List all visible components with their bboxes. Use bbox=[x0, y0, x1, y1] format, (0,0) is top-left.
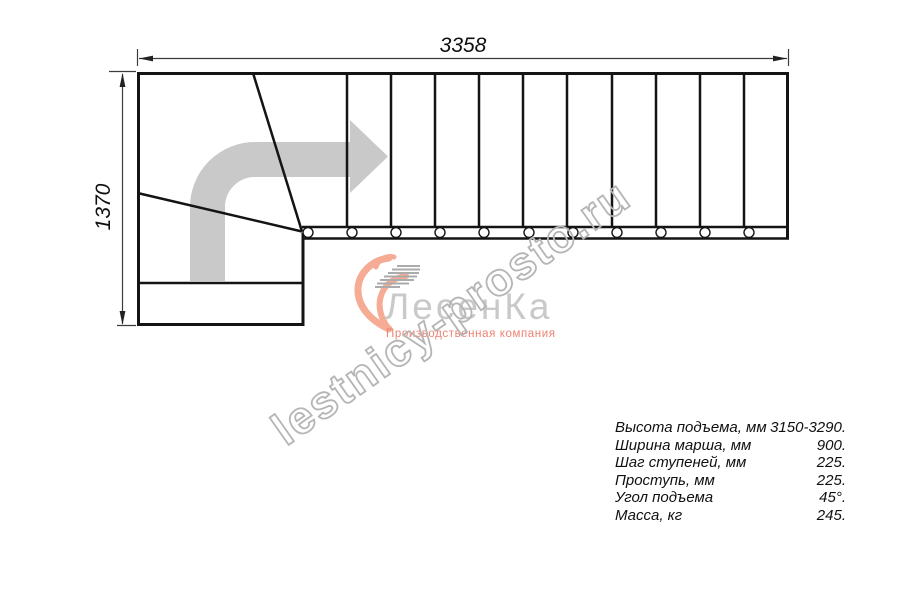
width-dimension: 3358 bbox=[138, 34, 789, 66]
spec-value: 225. bbox=[817, 454, 846, 472]
height-dimension: 1370 bbox=[92, 72, 136, 326]
spec-row: Высота подъема, мм 3150-3290. bbox=[615, 419, 846, 437]
baluster-circle bbox=[391, 228, 401, 238]
spec-label: Шаг ступеней, мм bbox=[615, 454, 746, 472]
height-dimension-label: 1370 bbox=[92, 183, 115, 230]
direction-arrow-shaft bbox=[208, 160, 351, 282]
baluster-circle bbox=[435, 228, 445, 238]
spec-label: Проступь, мм bbox=[615, 472, 715, 490]
spec-row: Ширина марша, мм 900. bbox=[615, 437, 846, 455]
spec-row: Масса, кг 245. bbox=[615, 507, 846, 525]
spec-value: 3150-3290. bbox=[770, 419, 846, 437]
watermark-text: lestnicy-prosto.ru bbox=[262, 169, 640, 455]
spec-label: Угол подъема bbox=[615, 489, 713, 507]
spec-row: Шаг ступеней, мм 225. bbox=[615, 454, 846, 472]
specs-table: Высота подъема, мм 3150-3290. Ширина мар… bbox=[615, 419, 846, 524]
width-dimension-label: 3358 bbox=[440, 34, 487, 57]
spec-value: 900. bbox=[817, 437, 846, 455]
spec-value: 225. bbox=[817, 472, 846, 490]
dimension-arrow-icon bbox=[120, 73, 126, 87]
stairs-lines-icon bbox=[375, 266, 420, 287]
baluster-circle bbox=[303, 228, 313, 238]
spec-row: Угол подъема 45°. bbox=[615, 489, 846, 507]
spec-value: 45°. bbox=[819, 489, 846, 507]
spec-label: Высота подъема, мм bbox=[615, 419, 767, 437]
spec-row: Проступь, мм 225. bbox=[615, 472, 846, 490]
dimension-arrow-icon bbox=[773, 56, 787, 62]
baluster-circle bbox=[744, 228, 754, 238]
spec-label: Масса, кг bbox=[615, 507, 682, 525]
dimension-arrow-icon bbox=[139, 56, 153, 62]
dimension-arrow-icon bbox=[120, 311, 126, 325]
spec-label: Ширина марша, мм bbox=[615, 437, 751, 455]
baluster-circle bbox=[479, 228, 489, 238]
stair-drawing-page: 3358 1370 bbox=[0, 0, 900, 600]
baluster-circle bbox=[700, 228, 710, 238]
direction-arrow bbox=[208, 120, 389, 281]
spec-value: 245. bbox=[817, 507, 846, 525]
baluster-circle bbox=[347, 228, 357, 238]
baluster-circle bbox=[656, 228, 666, 238]
direction-arrow-head bbox=[350, 120, 388, 193]
tread-lines bbox=[347, 73, 744, 227]
